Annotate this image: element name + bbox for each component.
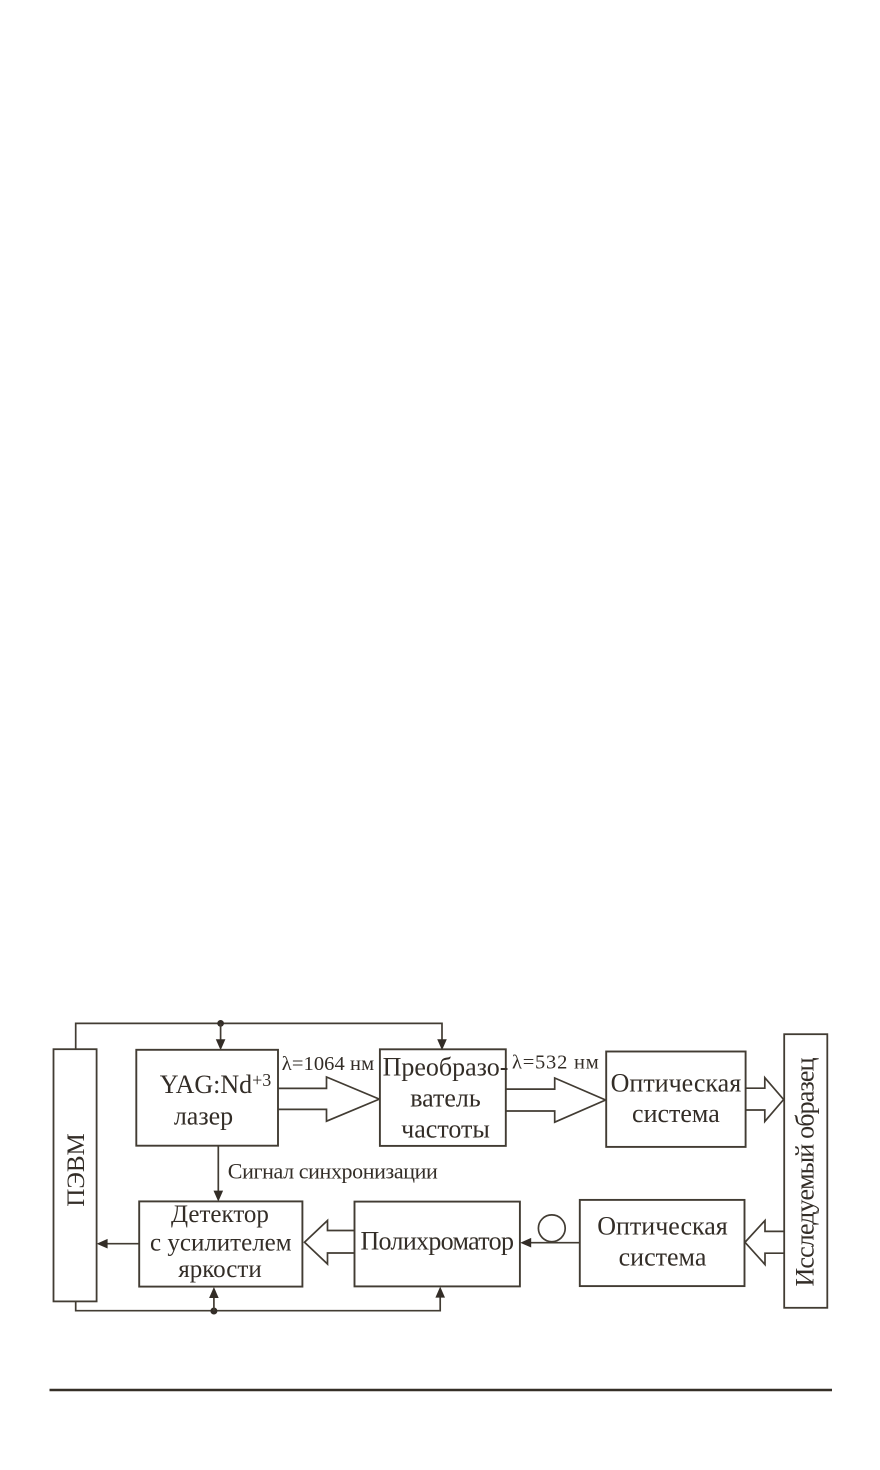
svg-text:система: система bbox=[632, 1099, 720, 1128]
svg-text:яркости: яркости bbox=[178, 1256, 261, 1283]
svg-text:с усилителем: с усилителем bbox=[150, 1229, 292, 1256]
svg-text:частоты: частоты bbox=[401, 1114, 490, 1143]
svg-text:система: система bbox=[619, 1243, 707, 1272]
svg-text:Преобразо-: Преобразо- bbox=[383, 1053, 509, 1082]
svg-text:Полихроматор: Полихроматор bbox=[360, 1227, 514, 1256]
svg-text:ПЭВМ: ПЭВМ bbox=[63, 1133, 90, 1206]
svg-text:Исследуемый образец: Исследуемый образец bbox=[791, 1057, 820, 1286]
svg-text:лазер: лазер bbox=[174, 1102, 233, 1131]
svg-text:ватель: ватель bbox=[410, 1084, 481, 1113]
svg-text:λ=532 нм: λ=532 нм bbox=[512, 1051, 599, 1073]
svg-text:Оптическая: Оптическая bbox=[597, 1212, 728, 1241]
svg-text:Оптическая: Оптическая bbox=[611, 1069, 742, 1098]
svg-text:λ=1064 нм: λ=1064 нм bbox=[282, 1053, 374, 1075]
svg-text:Детектор: Детектор bbox=[171, 1201, 269, 1228]
svg-text:Сигнал синхронизации: Сигнал синхронизации bbox=[228, 1159, 438, 1184]
